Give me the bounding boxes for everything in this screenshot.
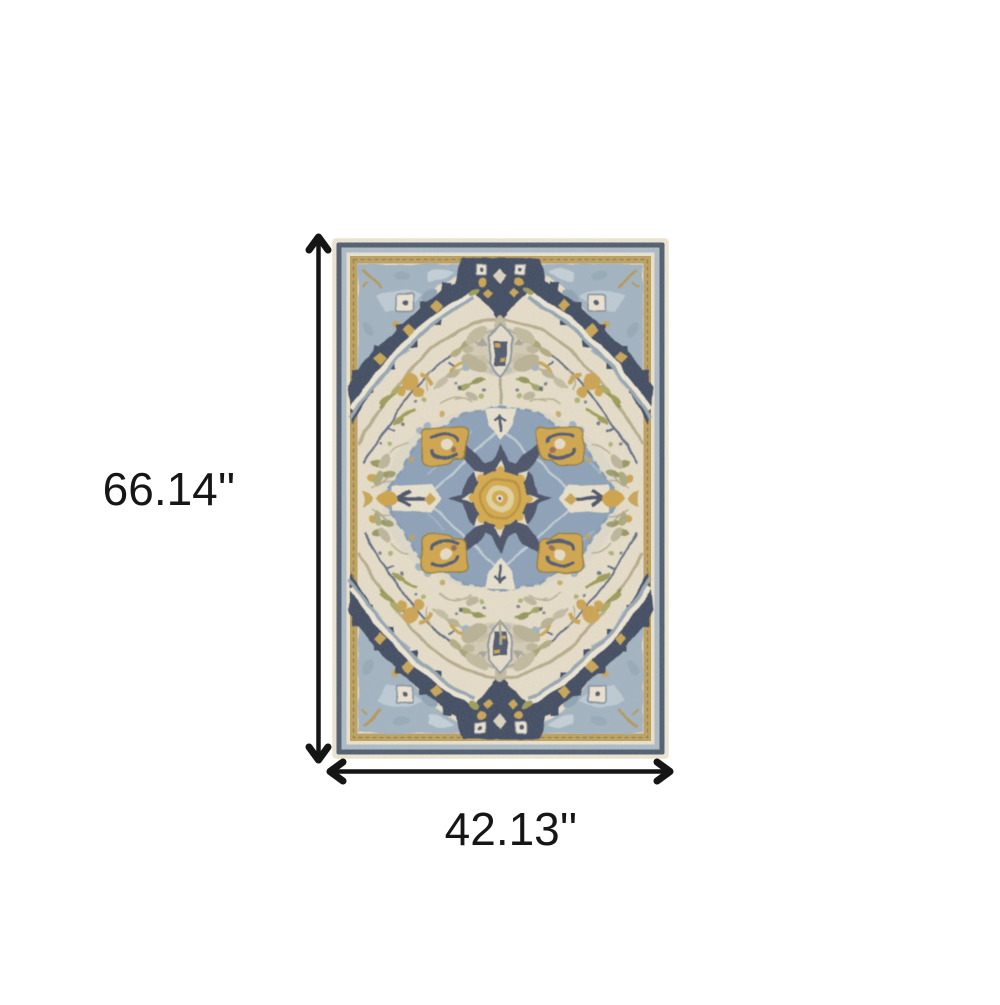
- svg-text:66.14'': 66.14'': [103, 463, 236, 515]
- svg-text:42.13'': 42.13'': [445, 803, 578, 855]
